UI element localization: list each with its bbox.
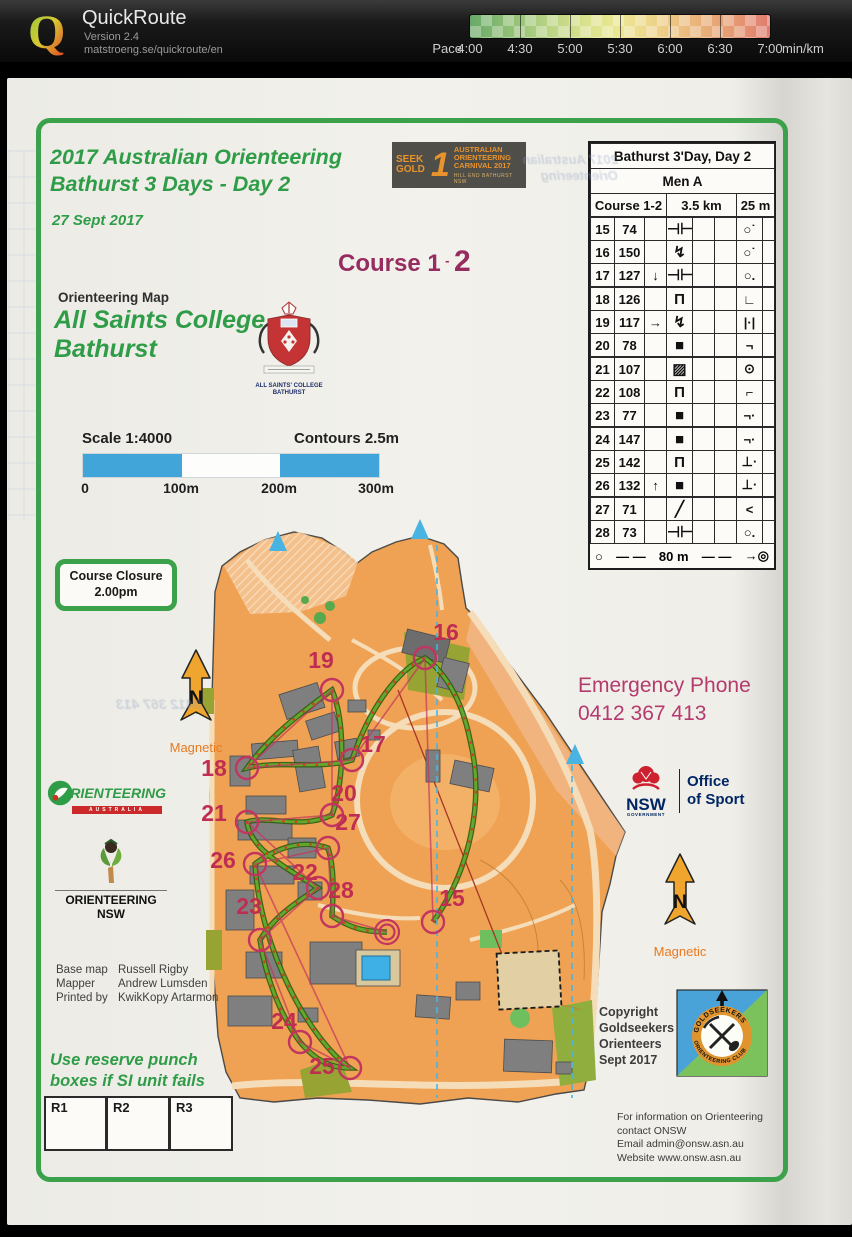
control-number-label: 16 (433, 619, 459, 645)
pace-tickmark (520, 15, 521, 38)
card-title: Bathurst 3'Day, Day 2 (591, 144, 775, 169)
scale-bar (82, 453, 380, 478)
control-code: 127 (615, 264, 645, 288)
reserve-line1: Use reserve punch (50, 1050, 205, 1071)
app-title: QuickRoute (82, 7, 187, 30)
feature-symbol: ⊣⊢ (667, 521, 693, 544)
blank (715, 497, 737, 521)
course-separator: - (445, 253, 449, 268)
position-symbol: ⊥· (737, 451, 763, 474)
emergency-number: 0412 367 413 (578, 700, 751, 728)
feature-symbol: ⊣⊢ (667, 217, 693, 241)
blank (693, 451, 715, 474)
position-symbol: < (737, 497, 763, 521)
feature-symbol: ▨ (667, 357, 693, 381)
magnetic-label: Magnetic (640, 944, 720, 959)
emergency-label: Emergency Phone (578, 672, 751, 700)
scale-tick-300: 300m (358, 480, 394, 496)
copyright-line: Orienteers (599, 1036, 674, 1052)
position-symbol: ○˙ (737, 217, 763, 241)
control-number-label: 20 (331, 780, 357, 806)
which-symbol (645, 357, 667, 381)
oa-wordmark: RIENTEERING (70, 785, 166, 801)
pace-tick-labels: 4:004:305:005:306:006:307:00 (470, 41, 770, 57)
office-line2: of Sport (687, 791, 745, 809)
control-number-label: 18 (201, 755, 227, 781)
swimming-pool (362, 956, 390, 980)
feature-symbol: ↯ (667, 241, 693, 264)
control-code: 74 (615, 217, 645, 241)
print-bleed-title: 2017 Australian Orienteering (498, 152, 618, 184)
position-symbol: |·| (737, 311, 763, 334)
svg-text:N: N (673, 892, 687, 913)
which-symbol (645, 404, 667, 428)
punch-box-r3: R3 (170, 1096, 233, 1151)
svg-text:Q: Q (28, 6, 65, 59)
card-climb: 25 m (737, 194, 775, 218)
course-heading: Course 1 - 2 (338, 245, 471, 279)
feature-symbol: Π (667, 287, 693, 311)
control-code: 77 (615, 404, 645, 428)
map-kind-label: Orienteering Map (58, 290, 169, 305)
feature-symbol: ■ (667, 474, 693, 498)
control-number-label: 21 (201, 800, 227, 826)
pace-tickmark (720, 15, 721, 38)
scale-tick-0: 0 (81, 480, 89, 496)
reserve-line2: boxes if SI unit fails (50, 1071, 205, 1092)
position-symbol: ¬· (737, 404, 763, 428)
blank (763, 311, 775, 334)
control-number-label: 28 (328, 877, 354, 903)
which-symbol (645, 497, 667, 521)
map-name-line2: Bathurst (54, 335, 265, 364)
orienteering-australia-logo: RIENTEERING AUSTRALIA (46, 778, 166, 814)
which-symbol (645, 217, 667, 241)
emergency-phone: Emergency Phone 0412 367 413 (578, 672, 751, 728)
pace-tickmark (570, 15, 571, 38)
which-symbol: ↑ (645, 474, 667, 498)
control-number: 24 (591, 427, 615, 451)
blank (715, 357, 737, 381)
orienteering-nsw-logo: ORIENTEERING NSW (55, 838, 167, 921)
nsw-abbr: NSW (620, 797, 672, 812)
control-row: 26132↑■⊥· (591, 474, 775, 498)
position-symbol: ○. (737, 264, 763, 288)
control-description-card: Bathurst 3'Day, Day 2 Men A Course 1-2 3… (588, 141, 776, 570)
scale-bar-labels: 0 100m 200m 300m (82, 480, 378, 496)
blank (763, 264, 775, 288)
control-row: 16150↯○˙ (591, 241, 775, 264)
feature-symbol: ■ (667, 334, 693, 358)
control-row: 18126Π∟ (591, 287, 775, 311)
college-crest-icon (256, 300, 322, 378)
control-code: 73 (615, 521, 645, 544)
control-number: 23 (591, 404, 615, 428)
position-symbol: ⌐ (737, 381, 763, 404)
map-credits: Base mapRussell Rigby MapperAndrew Lumsd… (56, 963, 218, 1005)
blank (763, 381, 775, 404)
credit-value: Andrew Lumsden (118, 978, 208, 990)
scale-tick-200: 200m (261, 480, 297, 496)
carnival-numeral: 1 (431, 148, 450, 182)
position-symbol: ¬ (737, 334, 763, 358)
blank (693, 264, 715, 288)
control-number: 15 (591, 217, 615, 241)
dashes: — — (616, 549, 646, 564)
position-symbol: ∟ (737, 287, 763, 311)
credit-value: Russell Rigby (118, 964, 188, 976)
control-number-label: 26 (210, 847, 236, 873)
control-code: 147 (615, 427, 645, 451)
contact-block: For information on Orienteering contact … (617, 1111, 763, 1165)
nsw-government: GOVERNMENT (620, 812, 672, 817)
feature-symbol: ■ (667, 427, 693, 451)
punch-box-r2: R2 (107, 1096, 170, 1151)
blank (715, 334, 737, 358)
blank (715, 474, 737, 498)
finish-circle-glyph: →◎ (745, 548, 769, 564)
control-number: 26 (591, 474, 615, 498)
blank (715, 241, 737, 264)
pace-tick-label: 6:30 (697, 41, 743, 56)
course-closure-box: Course Closure 2.00pm (55, 559, 177, 611)
feature-symbol: ⊣⊢ (667, 264, 693, 288)
control-code: 117 (615, 311, 645, 334)
control-code: 132 (615, 474, 645, 498)
control-number-label: 19 (308, 647, 334, 673)
event-title-line1: 2017 Australian Orienteering (50, 144, 342, 171)
blank (693, 381, 715, 404)
app-header: Q QuickRoute Version 2.4 matstroeng.se/q… (0, 0, 852, 62)
blank (715, 521, 737, 544)
control-row: 25142Π⊥· (591, 451, 775, 474)
blank (693, 217, 715, 241)
goldseekers-club-logo: GOLDSEEKERS ORIENTEERING CLUB (676, 982, 768, 1078)
blank (693, 497, 715, 521)
pace-tick-label: 6:00 (647, 41, 693, 56)
control-number: 25 (591, 451, 615, 474)
blank (693, 311, 715, 334)
control-number: 16 (591, 241, 615, 264)
khaki-court (497, 950, 562, 1009)
blank (715, 404, 737, 428)
feature-symbol: ╱ (667, 497, 693, 521)
which-symbol (645, 451, 667, 474)
control-number: 18 (591, 287, 615, 311)
scale-tick-100: 100m (163, 480, 199, 496)
credit-key: Base map (56, 963, 118, 977)
which-symbol (645, 287, 667, 311)
office-line1: Office (687, 773, 745, 791)
course-name: Course 1 (338, 250, 441, 277)
position-symbol: ⊥· (737, 474, 763, 498)
map-name-line1: All Saints College (54, 306, 265, 335)
college-name-line1: ALL SAINTS' COLLEGE (254, 383, 324, 390)
blank (715, 264, 737, 288)
control-row: 21107▨⊙ (591, 357, 775, 381)
control-row: 2377■¬· (591, 404, 775, 428)
pace-tickmark (670, 15, 671, 38)
control-row: 17127↓⊣⊢○. (591, 264, 775, 288)
nsw-office-of-sport-logo: NSW GOVERNMENT Office of Sport (620, 764, 745, 817)
card-class: Men A (591, 169, 775, 194)
control-number: 22 (591, 381, 615, 404)
blank (693, 241, 715, 264)
credit-value: KwikKopy Artarmon (118, 992, 218, 1004)
oa-australia-band: AUSTRALIA (72, 806, 162, 814)
position-symbol: ○˙ (737, 241, 763, 264)
blank (763, 474, 775, 498)
control-number: 21 (591, 357, 615, 381)
control-code: 108 (615, 381, 645, 404)
control-number-label: 15 (439, 885, 465, 911)
control-row: 24147■¬· (591, 427, 775, 451)
position-symbol: ○. (737, 521, 763, 544)
copyright-block: Copyright Goldseekers Orienteers Sept 20… (599, 1004, 674, 1068)
control-number-label: 17 (360, 731, 386, 757)
map-canvas[interactable]: 1516171819202122232425262728 (190, 515, 650, 1115)
contact-line: For information on Orienteering (617, 1111, 763, 1125)
copyright-line: Goldseekers (599, 1020, 674, 1036)
event-title: 2017 Australian Orienteering Bathurst 3 … (50, 144, 342, 198)
magnetic-north-arrow-icon: N (176, 648, 216, 738)
onsw-flower-icon (93, 838, 129, 884)
control-row: 2771╱< (591, 497, 775, 521)
control-number-label: 27 (335, 809, 361, 835)
divider (679, 769, 680, 813)
magnetic-label: Magnetic (156, 740, 236, 755)
reserve-punch-boxes: R1 R2 R3 (44, 1096, 233, 1151)
carnival-gold: GOLD (396, 165, 425, 175)
blank (763, 404, 775, 428)
control-code: 150 (615, 241, 645, 264)
which-symbol (645, 521, 667, 544)
dashes: — — (702, 549, 732, 564)
which-symbol (645, 241, 667, 264)
control-code: 107 (615, 357, 645, 381)
blank (693, 474, 715, 498)
feature-symbol: Π (667, 381, 693, 404)
control-code: 71 (615, 497, 645, 521)
which-symbol (645, 427, 667, 451)
control-code: 126 (615, 287, 645, 311)
closure-line1: Course Closure (60, 568, 172, 584)
blank (763, 357, 775, 381)
control-code: 78 (615, 334, 645, 358)
blank (693, 427, 715, 451)
control-number-label: 22 (292, 859, 318, 885)
blank (763, 241, 775, 264)
reserve-punch-note: Use reserve punch boxes if SI unit fails (50, 1050, 205, 1092)
card-length: 3.5 km (667, 194, 737, 218)
blank (693, 404, 715, 428)
blank (693, 287, 715, 311)
app-url-link[interactable]: matstroeng.se/quickroute/en (84, 44, 223, 56)
print-bleed-artifact (8, 150, 40, 520)
feature-symbol: Π (667, 451, 693, 474)
college-crest: ALL SAINTS' COLLEGE BATHURST (254, 300, 324, 397)
position-symbol: ¬· (737, 427, 763, 451)
blank (693, 521, 715, 544)
control-number-label: 24 (271, 1008, 297, 1034)
control-number: 28 (591, 521, 615, 544)
blank (763, 334, 775, 358)
card-course: Course 1-2 (591, 194, 667, 218)
finish-leg-row: ○ — — 80 m — — →◎ (590, 544, 774, 568)
punch-box-r1: R1 (44, 1096, 107, 1151)
app-version: Version 2.4 (84, 31, 139, 43)
blank (693, 357, 715, 381)
contours-label: Contours 2.5m (294, 430, 399, 447)
control-number: 19 (591, 311, 615, 334)
blank (763, 451, 775, 474)
finish-distance: 80 m (659, 549, 689, 564)
closure-line2: 2.00pm (60, 584, 172, 600)
quickroute-logo-icon: Q (26, 4, 78, 60)
pace-tickmark (620, 15, 621, 38)
blank (693, 334, 715, 358)
control-number: 17 (591, 264, 615, 288)
feature-symbol: ↯ (667, 311, 693, 334)
blank (763, 521, 775, 544)
print-bleed-phone: 0412 367 413 (116, 696, 202, 712)
blank (715, 427, 737, 451)
waratah-icon (628, 764, 664, 792)
copyright-line: Copyright (599, 1004, 674, 1020)
pace-unit: min/km (782, 41, 824, 56)
control-number: 27 (591, 497, 615, 521)
which-symbol: ↓ (645, 264, 667, 288)
pace-gradient-bar (470, 15, 770, 38)
which-symbol: → (645, 311, 667, 334)
contact-line: contact ONSW (617, 1125, 763, 1139)
copyright-line: Sept 2017 (599, 1052, 674, 1068)
course-overprint: 2 (454, 245, 471, 278)
control-row: 1574⊣⊢○˙ (591, 217, 775, 241)
pace-tick-label: 4:00 (447, 41, 493, 56)
start-circle-glyph: ○ (595, 549, 603, 564)
control-row: 22108Π⌐ (591, 381, 775, 404)
contact-line: Website www.onsw.asn.au (617, 1152, 763, 1166)
blank (763, 427, 775, 451)
which-symbol (645, 334, 667, 358)
scale-label: Scale 1:4000 (82, 430, 172, 447)
event-date: 27 Sept 2017 (52, 212, 143, 229)
which-symbol (645, 381, 667, 404)
blank (715, 287, 737, 311)
event-title-line2: Bathurst 3 Days - Day 2 (50, 171, 342, 198)
feature-symbol: ■ (667, 404, 693, 428)
map-name: All Saints College Bathurst (54, 306, 265, 364)
magnetic-north-arrow-icon: N (660, 852, 700, 942)
college-name-line2: BATHURST (254, 390, 324, 397)
blank (715, 451, 737, 474)
pace-tick-label: 5:30 (597, 41, 643, 56)
control-number-label: 25 (309, 1053, 335, 1079)
pace-tick-label: 5:00 (547, 41, 593, 56)
credit-key: Printed by (56, 991, 118, 1005)
blank (763, 287, 775, 311)
onsw-wordmark: ORIENTEERING NSW (55, 890, 167, 921)
contact-line: Email admin@onsw.asn.au (617, 1138, 763, 1152)
pace-tick-label: 4:30 (497, 41, 543, 56)
control-row: 2873⊣⊢○. (591, 521, 775, 544)
blank (715, 381, 737, 404)
control-number-label: 23 (236, 893, 262, 919)
control-number: 20 (591, 334, 615, 358)
blank (763, 497, 775, 521)
credit-key: Mapper (56, 977, 118, 991)
blank (763, 217, 775, 241)
control-row: 19117→↯|·| (591, 311, 775, 334)
control-code: 142 (615, 451, 645, 474)
control-row: 2078■¬ (591, 334, 775, 358)
blank (715, 311, 737, 334)
position-symbol: ⊙ (737, 357, 763, 381)
blank (715, 217, 737, 241)
